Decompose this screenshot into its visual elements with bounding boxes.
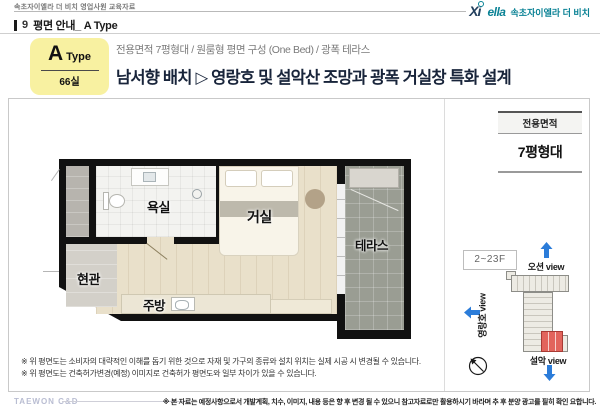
plan-pillow <box>261 170 293 187</box>
brand-logo: Xi ella 속초자이엘라 더 비치 <box>469 1 590 19</box>
brand-korean-name: 속초자이엘라 더 비치 <box>510 6 590 19</box>
plan-wall-segment <box>174 237 223 244</box>
area-table-value: 7평형대 <box>498 134 582 173</box>
plan-round-rug <box>305 189 325 209</box>
headline-block: 전용면적 7평형대 / 원룸형 평면 구성 (One Bed) / 광폭 테라스… <box>116 42 511 88</box>
room-label-kitchen: 주방 <box>143 295 165 314</box>
xi-logo-icon: Xi <box>469 1 484 19</box>
plan-wall-segment <box>89 166 96 237</box>
content-divider <box>444 99 445 391</box>
plan-pillow <box>225 170 257 187</box>
mountain-view-arrow-icon <box>543 365 556 386</box>
lake-view-label: 영랑호 view <box>476 281 489 351</box>
headline-sub: 전용면적 7평형대 / 원룸형 평면 구성 (One Bed) / 광폭 테라스 <box>116 42 511 57</box>
headline-main: 남서향 배치 ▷ 영랑호 및 설악산 조망과 광폭 거실창 특화 설계 <box>116 64 511 88</box>
room-label-entry: 현관 <box>77 269 100 288</box>
header-rule <box>14 11 466 12</box>
area-table-header: 전용면적 <box>498 111 582 134</box>
type-divider <box>41 70 99 71</box>
plan-closet <box>66 166 89 237</box>
type-unit-count: 66실 <box>30 73 109 88</box>
plan-terrace-storage <box>349 168 399 188</box>
unit-a-highlight <box>541 331 563 352</box>
page-number: 9 <box>22 19 28 31</box>
ella-logo-text: ella <box>487 5 505 19</box>
plan-shower-drain <box>192 189 202 199</box>
plan-exterior-mark <box>43 271 59 272</box>
room-label-terrace: 테라스 <box>355 235 388 254</box>
type-badge: AType 66실 <box>30 38 109 95</box>
plan-wall-segment <box>337 159 345 184</box>
plan-wall-segment <box>337 294 345 321</box>
slide-page: 속초자이엘라 더 비치 영업사원 교육자료 Xi ella 속초자이엘라 더 비… <box>0 0 600 415</box>
page-title-row: 9 평면 안내_ A Type <box>14 17 117 33</box>
page-title: 평면 안내_ A Type <box>33 17 117 33</box>
plan-wall-segment <box>59 237 147 244</box>
north-compass-icon <box>467 355 489 382</box>
floors-range-box: 2~23F <box>463 250 517 270</box>
area-table: 전용면적 7평형대 <box>498 111 582 173</box>
title-bar-icon <box>14 20 17 31</box>
building-diagram-wing <box>511 275 569 292</box>
room-label-living: 거실 <box>247 207 272 227</box>
plan-bath-basin <box>143 172 156 182</box>
type-word: Type <box>66 51 91 63</box>
content-box: 전용면적 7평형대 <box>8 98 590 392</box>
title-rule <box>0 33 600 34</box>
floor-plan: 욕실 거실 테라스 현관 주방 <box>59 159 411 341</box>
plan-note-line: ※ 위 평면도는 소비자의 대략적인 이해를 돕기 위한 것으로 자재 및 가구… <box>21 356 421 368</box>
plan-kitchen-basin <box>175 300 189 310</box>
room-label-bath: 욕실 <box>147 197 170 216</box>
ocean-view-label: 오션 view <box>515 260 577 273</box>
type-letter: A <box>48 42 63 65</box>
plan-toilet-bowl <box>109 194 125 208</box>
plan-exterior-mark <box>51 169 60 181</box>
plan-notes: ※ 위 평면도는 소비자의 대략적인 이해를 돕기 위한 것으로 자재 및 가구… <box>21 356 421 381</box>
plan-window-band <box>337 184 345 294</box>
plan-note-line: ※ 위 평면도는 건축허가변경(예정) 이미지로 건축허가 평면도와 일부 차이… <box>21 368 421 380</box>
footer-disclaimer: ※ 본 자료는 예정사항으로서 개발계획, 치수, 이미지, 내용 등은 향 후… <box>163 397 596 407</box>
